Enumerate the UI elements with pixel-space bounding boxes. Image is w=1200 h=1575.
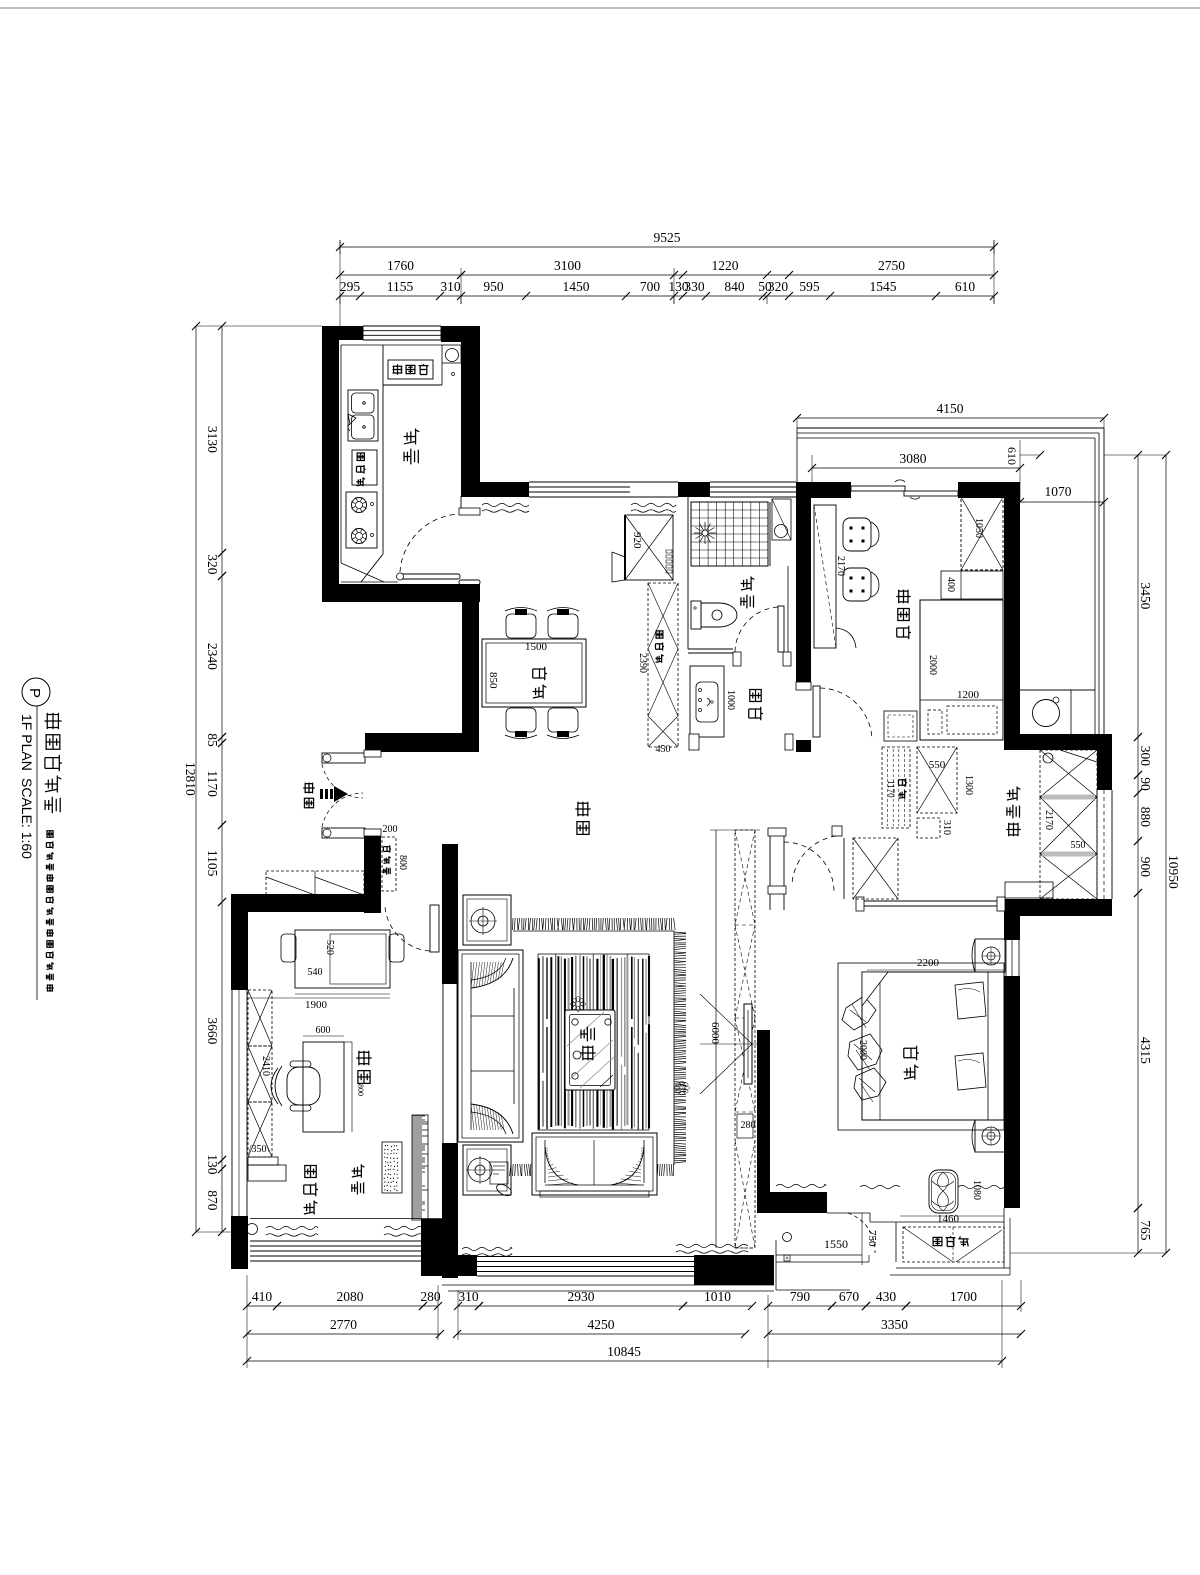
svg-text:2170: 2170 <box>1043 810 1054 830</box>
svg-text:1760: 1760 <box>387 258 414 273</box>
svg-text:3080: 3080 <box>900 451 927 466</box>
svg-text:840: 840 <box>724 279 745 294</box>
svg-text:610: 610 <box>955 279 976 294</box>
svg-text:870: 870 <box>205 1190 220 1211</box>
svg-text:2770: 2770 <box>330 1317 357 1332</box>
svg-text:1F PLAN: 1F PLAN <box>19 714 35 771</box>
svg-text:SCALE: 1:60: SCALE: 1:60 <box>19 778 35 859</box>
svg-text:320: 320 <box>205 554 220 575</box>
svg-text:/350\: /350\ <box>249 1144 270 1155</box>
svg-text:2410: 2410 <box>260 1056 271 1076</box>
svg-text:1300: 1300 <box>963 775 974 795</box>
svg-text:765: 765 <box>1138 1220 1153 1241</box>
svg-text:85: 85 <box>205 733 220 747</box>
svg-text:6000: 6000 <box>709 1022 721 1045</box>
svg-text:600: 600 <box>316 1025 331 1036</box>
svg-text:3660: 3660 <box>205 1017 220 1044</box>
svg-text:1900: 1900 <box>305 999 328 1011</box>
svg-text:130: 130 <box>205 1154 220 1175</box>
svg-text:10845: 10845 <box>607 1344 641 1359</box>
svg-text:1220: 1220 <box>712 258 739 273</box>
svg-text:900: 900 <box>1138 857 1153 878</box>
svg-text:1500: 1500 <box>525 641 548 653</box>
svg-text:430: 430 <box>876 1289 897 1304</box>
svg-text:1170: 1170 <box>886 780 896 798</box>
svg-text:310: 310 <box>440 279 461 294</box>
svg-text:550: 550 <box>1071 840 1086 851</box>
svg-text:920: 920 <box>631 532 643 549</box>
svg-text:850: 850 <box>487 672 499 689</box>
svg-text:550: 550 <box>929 759 946 771</box>
svg-text:2930: 2930 <box>568 1289 595 1304</box>
svg-text:1155: 1155 <box>387 279 414 294</box>
svg-text:880: 880 <box>1138 807 1153 828</box>
svg-text:90: 90 <box>1138 777 1153 791</box>
svg-text:310: 310 <box>941 820 952 835</box>
svg-text:1170: 1170 <box>205 770 220 797</box>
svg-text:1550: 1550 <box>824 1237 848 1251</box>
svg-text:280: 280 <box>741 1120 756 1131</box>
svg-text:310: 310 <box>458 1289 479 1304</box>
svg-text:3450: 3450 <box>1138 582 1153 609</box>
svg-text:1010: 1010 <box>704 1289 731 1304</box>
svg-text:12810: 12810 <box>183 762 198 796</box>
svg-text:595: 595 <box>799 279 820 294</box>
svg-text:4315: 4315 <box>1138 1037 1153 1064</box>
svg-text:200: 200 <box>383 824 398 835</box>
svg-text:540: 540 <box>308 967 323 978</box>
svg-text:2000: 2000 <box>927 655 938 675</box>
svg-text:520: 520 <box>324 940 335 955</box>
svg-text:2750: 2750 <box>878 258 905 273</box>
svg-text:1200: 1200 <box>957 689 980 701</box>
svg-text:3350: 3350 <box>881 1317 908 1332</box>
svg-text:1460: 1460 <box>937 1213 960 1225</box>
svg-text:400: 400 <box>945 577 956 592</box>
svg-text:2170: 2170 <box>835 556 846 576</box>
svg-text:1545: 1545 <box>870 279 897 294</box>
svg-text:3130: 3130 <box>205 426 220 453</box>
svg-text:800: 800 <box>356 1084 365 1096</box>
svg-text:950: 950 <box>483 279 504 294</box>
svg-text:800: 800 <box>397 855 408 870</box>
svg-text:3100: 3100 <box>554 258 581 273</box>
svg-text:330: 330 <box>684 279 705 294</box>
svg-text:295: 295 <box>340 279 361 294</box>
svg-text:450: 450 <box>656 744 671 755</box>
svg-text:700: 700 <box>640 279 661 294</box>
svg-text:1105: 1105 <box>205 850 220 877</box>
svg-text:2390: 2390 <box>637 653 648 673</box>
svg-text:410: 410 <box>252 1289 273 1304</box>
svg-text:1000: 1000 <box>725 690 736 710</box>
svg-text:P: P <box>26 688 43 698</box>
svg-text:2080: 2080 <box>337 1289 364 1304</box>
svg-text:300: 300 <box>1138 746 1153 767</box>
svg-text:2340: 2340 <box>205 643 220 670</box>
svg-text:1070: 1070 <box>1045 484 1072 499</box>
svg-text:320: 320 <box>768 279 789 294</box>
svg-text:9525: 9525 <box>654 230 681 245</box>
svg-text:750: 750 <box>866 1230 878 1247</box>
svg-text:10950: 10950 <box>1166 855 1181 889</box>
svg-text:2000: 2000 <box>857 1040 868 1060</box>
svg-text:790: 790 <box>790 1289 811 1304</box>
svg-text:2200: 2200 <box>917 957 940 969</box>
svg-text:1450: 1450 <box>563 279 590 294</box>
svg-text:1700: 1700 <box>950 1289 977 1304</box>
svg-text:1050: 1050 <box>973 518 984 538</box>
svg-text:1080: 1080 <box>971 1180 982 1200</box>
svg-text:4250: 4250 <box>588 1317 615 1332</box>
svg-text:670: 670 <box>839 1289 860 1304</box>
svg-text:4150: 4150 <box>937 401 964 416</box>
svg-text:610: 610 <box>1005 447 1019 465</box>
